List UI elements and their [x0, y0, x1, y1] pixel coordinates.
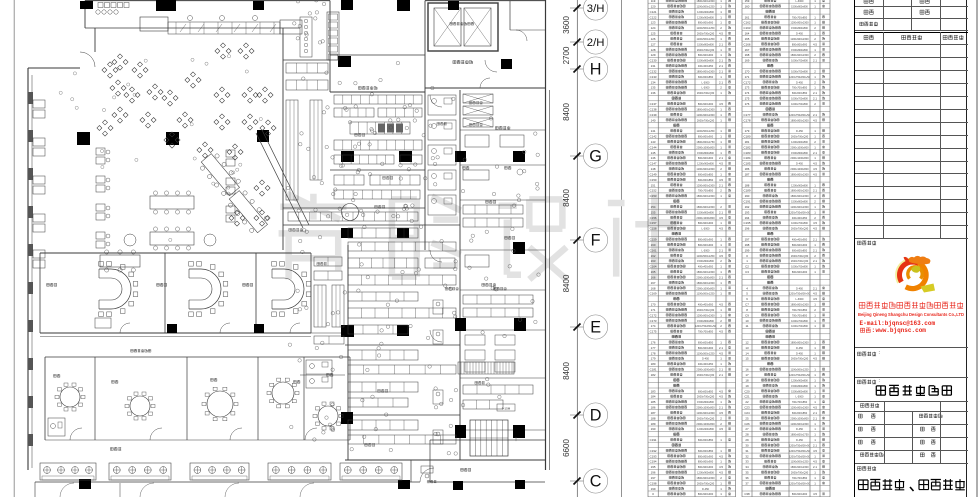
svg-text:C: C: [590, 472, 602, 490]
svg-text:195: 195: [651, 465, 656, 469]
svg-text:1: 1: [814, 324, 816, 328]
svg-text:800x900x900: 800x900x900: [698, 492, 714, 496]
svg-text:1: 1: [814, 270, 816, 274]
svg-text:162: 162: [651, 254, 656, 258]
svg-text:1100x560x1250: 1100x560x1250: [697, 292, 716, 296]
svg-text:1200x900x800: 1200x900x800: [697, 471, 714, 475]
svg-text:194: 194: [745, 216, 750, 220]
svg-text:176: 176: [651, 341, 656, 345]
svg-text:700x700x850: 700x700x850: [698, 189, 714, 193]
svg-text:8400: 8400: [562, 189, 571, 207]
svg-text:1: 1: [720, 243, 722, 247]
svg-text:1800x900x2300: 1800x900x2300: [696, 476, 715, 480]
svg-text:700x700x850: 700x700x850: [792, 308, 808, 312]
svg-text:2.1: 2.1: [719, 210, 723, 214]
svg-text:1500x800x800: 1500x800x800: [697, 151, 714, 155]
svg-text:600x600x850: 600x600x850: [698, 178, 714, 182]
svg-text:31: 31: [745, 449, 749, 453]
svg-text:1: 1: [814, 422, 816, 426]
svg-text:2.1: 2.1: [813, 416, 817, 420]
svg-text:400x400x950: 400x400x950: [792, 238, 808, 242]
svg-text:C191: C191: [744, 200, 751, 204]
svg-text:2.1: 2.1: [719, 64, 723, 68]
svg-text:4.5: 4.5: [719, 330, 723, 334]
svg-text:800x900x900: 800x900x900: [792, 270, 808, 274]
svg-text:1500x800x800: 1500x800x800: [791, 4, 808, 8]
svg-text:2.1: 2.1: [719, 368, 723, 372]
svg-text:25: 25: [745, 416, 749, 420]
svg-text:C156: C156: [650, 216, 657, 220]
svg-text:C182: C182: [744, 145, 751, 149]
svg-text:G: G: [589, 147, 602, 165]
svg-text:15: 15: [745, 357, 749, 361]
svg-text:174: 174: [745, 91, 750, 95]
svg-text:1: 1: [814, 129, 816, 133]
svg-text:600x600x850: 600x600x850: [698, 389, 714, 393]
svg-text:600x600x850: 600x600x850: [792, 91, 808, 95]
svg-text:1: 1: [720, 194, 722, 198]
svg-text:190: 190: [745, 194, 750, 198]
svg-text:C137: C137: [650, 102, 657, 106]
svg-text:1200x900x2300: 1200x900x2300: [790, 21, 809, 25]
svg-text:19: 19: [745, 384, 749, 388]
svg-text:C184: C184: [744, 156, 751, 160]
svg-text:1: 1: [814, 210, 816, 214]
svg-text:600x600x850: 600x600x850: [698, 75, 714, 79]
svg-text:196: 196: [651, 471, 656, 475]
svg-text:2600x700xQ30: 2600x700xQ30: [791, 227, 809, 231]
svg-text:1: 1: [814, 346, 816, 350]
svg-text:1500x800x800: 1500x800x800: [697, 210, 714, 214]
svg-text:1: 1: [720, 107, 722, 111]
svg-text:186: 186: [745, 167, 750, 171]
svg-text:1: 1: [720, 400, 722, 404]
svg-text:2.1: 2.1: [719, 70, 723, 74]
svg-text:D-450: D-450: [796, 346, 804, 350]
svg-text:1500x800x800: 1500x800x800: [791, 26, 808, 30]
svg-text:192: 192: [745, 205, 750, 209]
svg-text:4.5: 4.5: [813, 492, 817, 496]
svg-text:1: 1: [720, 238, 722, 242]
svg-text:1: 1: [720, 53, 722, 57]
svg-text:187: 187: [745, 173, 750, 177]
svg-text:2000x1000x800: 2000x1000x800: [696, 145, 715, 149]
svg-text:32: 32: [745, 454, 749, 458]
svg-text:4.5: 4.5: [719, 216, 723, 220]
svg-text:1500x800x800: 1500x800x800: [697, 259, 714, 263]
svg-text:2: 2: [814, 200, 816, 204]
svg-text:16: 16: [745, 368, 749, 372]
svg-text:1000x700x800: 1000x700x800: [791, 102, 808, 106]
svg-text:169: 169: [745, 59, 750, 63]
svg-text:1800x900x2300: 1800x900x2300: [790, 53, 809, 57]
svg-text:1: 1: [814, 341, 816, 345]
svg-text:131: 131: [651, 64, 656, 68]
svg-text:14: 14: [745, 351, 749, 355]
svg-text:1000x700x800: 1000x700x800: [791, 265, 808, 269]
svg-text:123: 123: [651, 21, 656, 25]
svg-text:168: 168: [651, 286, 656, 290]
svg-text:C153: C153: [650, 194, 657, 198]
svg-text:C130: C130: [650, 59, 657, 63]
svg-text:C21: C21: [744, 395, 750, 399]
svg-text:C152: C152: [650, 189, 657, 193]
svg-text:800x900x900: 800x900x900: [698, 454, 714, 458]
svg-text:C147: C147: [650, 162, 657, 166]
svg-text:4.5: 4.5: [813, 42, 817, 46]
svg-text:4.5: 4.5: [719, 395, 723, 399]
svg-text:1800x900x2300: 1800x900x2300: [790, 189, 809, 193]
svg-text:4.5: 4.5: [813, 118, 817, 122]
svg-text:1: 1: [720, 341, 722, 345]
svg-text:167: 167: [745, 48, 750, 52]
svg-text:1200x900x800: 1200x900x800: [791, 140, 808, 144]
svg-text:165: 165: [745, 37, 750, 41]
svg-text:1500x800x800: 1500x800x800: [791, 389, 808, 393]
svg-text:H: H: [590, 60, 602, 78]
svg-text:C166: C166: [744, 42, 751, 46]
svg-text:4.5: 4.5: [719, 427, 723, 431]
svg-text:183: 183: [651, 389, 656, 393]
svg-text:4.5: 4.5: [719, 32, 723, 36]
svg-text:1200x900x2300: 1200x900x2300: [696, 167, 715, 171]
svg-text:2.1: 2.1: [813, 189, 817, 193]
svg-text:700x700x850: 700x700x850: [792, 313, 808, 317]
svg-text:2000x1000x800: 2000x1000x800: [790, 416, 809, 420]
svg-text:154: 154: [651, 205, 656, 209]
svg-text:166: 166: [651, 275, 656, 279]
svg-text:4.5: 4.5: [719, 162, 723, 166]
svg-text:2000x1000x800: 2000x1000x800: [696, 216, 715, 220]
svg-text:800x900x900: 800x900x900: [792, 42, 808, 46]
svg-text:193: 193: [745, 210, 750, 214]
svg-text:1: 1: [720, 357, 722, 361]
svg-text:C7: C7: [745, 303, 749, 307]
svg-text:8: 8: [746, 308, 748, 312]
svg-text:2600x700xQ30: 2600x700xQ30: [791, 254, 809, 258]
svg-text:17: 17: [745, 373, 749, 377]
svg-text:10: 10: [745, 319, 749, 323]
svg-text:1: 1: [814, 15, 816, 19]
svg-text:1: 1: [814, 265, 816, 269]
svg-text:2.1: 2.1: [813, 91, 817, 95]
svg-text:1200x750x800+50: 1200x750x800+50: [789, 481, 811, 485]
svg-text:800x900x900: 800x900x900: [698, 238, 714, 242]
svg-text:2.1: 2.1: [719, 183, 723, 187]
svg-text:151: 151: [651, 183, 656, 187]
svg-text:1800x900x2300: 1800x900x2300: [696, 194, 715, 198]
svg-text:C133: C133: [650, 75, 657, 79]
svg-text:1: 1: [814, 243, 816, 247]
svg-text:1200x750x800+50: 1200x750x800+50: [789, 454, 811, 458]
svg-text:C173: C173: [650, 319, 657, 323]
svg-text:C23: C23: [744, 406, 750, 410]
svg-text:199: 199: [745, 248, 750, 252]
svg-text:2000x1000x800: 2000x1000x800: [696, 406, 715, 410]
svg-text:800x900x900: 800x900x900: [698, 346, 714, 350]
svg-text:1: 1: [720, 151, 722, 155]
svg-text:2: 2: [720, 422, 722, 426]
svg-text:1800x900x2300: 1800x900x2300: [790, 341, 809, 345]
svg-text:163: 163: [651, 259, 656, 263]
svg-text:C161: C161: [650, 248, 657, 252]
svg-text:1500x800x800: 1500x800x800: [697, 42, 714, 46]
svg-text:4.5: 4.5: [719, 178, 723, 182]
svg-text:1800x900x2300: 1800x900x2300: [790, 303, 809, 307]
svg-text:800x900x900: 800x900x900: [698, 21, 714, 25]
svg-text:1000x700x800: 1000x700x800: [791, 97, 808, 101]
svg-text:1: 1: [814, 433, 816, 437]
svg-text:119: 119: [651, 0, 656, 3]
svg-text:700x700x850: 700x700x850: [792, 86, 808, 90]
svg-text:145: 145: [651, 151, 656, 155]
svg-text:1200x900x2300: 1200x900x2300: [790, 205, 809, 209]
svg-text:2600x700xQ30: 2600x700xQ30: [791, 135, 809, 139]
svg-text:180: 180: [651, 362, 656, 366]
svg-text:800x900x900: 800x900x900: [698, 102, 714, 106]
svg-text:C180: C180: [744, 135, 751, 139]
svg-text:4.5: 4.5: [813, 297, 817, 301]
svg-text:1800x900x2300: 1800x900x2300: [696, 281, 715, 285]
svg-text:1: 1: [814, 384, 816, 388]
svg-text:199: 199: [651, 487, 656, 491]
svg-text:1: 1: [720, 438, 722, 442]
svg-text:2.1: 2.1: [813, 97, 817, 101]
svg-text:1: 1: [720, 135, 722, 139]
svg-text:4.5: 4.5: [813, 162, 817, 166]
svg-text:400x400x950: 400x400x950: [698, 64, 714, 68]
svg-text:4: 4: [746, 286, 748, 290]
svg-text:1: 1: [720, 281, 722, 285]
svg-text:1: 1: [814, 145, 816, 149]
svg-text:1: 1: [814, 156, 816, 160]
svg-text:1: 1: [720, 21, 722, 25]
svg-text:186: 186: [651, 406, 656, 410]
svg-text:129: 129: [651, 53, 656, 57]
svg-text:C157: C157: [650, 221, 657, 225]
svg-text:800x900x900: 800x900x900: [698, 156, 714, 160]
svg-text:34: 34: [745, 465, 749, 469]
svg-text:3600: 3600: [562, 16, 571, 34]
svg-text:1: 1: [720, 129, 722, 133]
svg-text:160: 160: [745, 4, 750, 8]
svg-text:2: 2: [720, 86, 722, 90]
svg-text:1200x750x800+50: 1200x750x800+50: [789, 373, 811, 377]
svg-text:C172: C172: [744, 80, 751, 84]
svg-text:C185: C185: [744, 162, 751, 166]
svg-text:1: 1: [814, 303, 816, 307]
svg-text:4.5: 4.5: [813, 227, 817, 231]
svg-text:2.1: 2.1: [719, 406, 723, 410]
svg-text:2.1: 2.1: [813, 411, 817, 415]
svg-text:159: 159: [745, 0, 750, 3]
svg-text:C159: C159: [650, 238, 657, 242]
svg-text:D-450: D-450: [702, 487, 710, 491]
svg-text:2.1: 2.1: [813, 248, 817, 252]
svg-text:2: 2: [814, 194, 816, 198]
svg-text:1: 1: [720, 313, 722, 317]
svg-text:1: 1: [814, 389, 816, 393]
svg-text:C169: C169: [650, 292, 657, 296]
svg-text:4.5: 4.5: [719, 303, 723, 307]
svg-text:400x400x950: 400x400x950: [698, 362, 714, 366]
svg-text:↑: ↑: [514, 436, 518, 443]
svg-text:134: 134: [651, 80, 656, 84]
svg-text:1: 1: [746, 259, 748, 263]
svg-text:800x900x900: 800x900x900: [698, 243, 714, 247]
svg-text:700x700x850: 700x700x850: [792, 15, 808, 19]
svg-text:124: 124: [651, 26, 656, 30]
svg-text:800x900x900: 800x900x900: [698, 460, 714, 464]
svg-text:2: 2: [814, 53, 816, 57]
svg-text:1: 1: [720, 75, 722, 79]
svg-text:187: 187: [651, 411, 656, 415]
svg-text:1800x600x1750: 1800x600x1750: [696, 140, 715, 144]
svg-text:C195: C195: [744, 221, 751, 225]
svg-text:400x400x950: 400x400x950: [792, 216, 808, 220]
svg-text:4.5: 4.5: [813, 292, 817, 296]
svg-text:C9: C9: [745, 313, 749, 317]
svg-text:400x400x950: 400x400x950: [698, 303, 714, 307]
svg-text:2: 2: [814, 37, 816, 41]
svg-text:800x900x900: 800x900x900: [698, 135, 714, 139]
svg-text:4.5: 4.5: [719, 227, 723, 231]
svg-text:2700: 2700: [562, 46, 571, 64]
svg-text:C175: C175: [650, 330, 657, 334]
svg-text:2: 2: [720, 324, 722, 328]
svg-text:178: 178: [651, 351, 656, 355]
svg-text:1: 1: [814, 476, 816, 480]
svg-text:2.1: 2.1: [813, 113, 817, 117]
svg-text:1: 1: [720, 460, 722, 464]
svg-text:C150: C150: [650, 178, 657, 182]
svg-text:1: 1: [720, 449, 722, 453]
svg-text:1: 1: [720, 48, 722, 52]
svg-text:700x700x850: 700x700x850: [698, 330, 714, 334]
svg-text:1200x750x800+50: 1200x750x800+50: [789, 444, 811, 448]
svg-text:D-450: D-450: [796, 129, 804, 133]
svg-text:1: 1: [720, 265, 722, 269]
svg-text:1: 1: [814, 454, 816, 458]
svg-text:2.1: 2.1: [719, 248, 723, 252]
svg-text:2: 2: [720, 259, 722, 263]
svg-text:1: 1: [814, 400, 816, 404]
svg-text:167: 167: [651, 281, 656, 285]
svg-text:36: 36: [745, 476, 749, 480]
svg-text:2000x1000x800: 2000x1000x800: [696, 286, 715, 290]
svg-text:2000x1000x800: 2000x1000x800: [696, 422, 715, 426]
svg-text:C121: C121: [650, 10, 657, 14]
svg-text:1200x750x800+50: 1200x750x800+50: [789, 292, 811, 296]
svg-text:0: 0: [652, 492, 654, 496]
svg-text:140: 140: [651, 118, 656, 122]
svg-text:125: 125: [651, 32, 656, 36]
svg-text:1: 1: [720, 4, 722, 8]
svg-text:155: 155: [651, 210, 656, 214]
svg-text:L-3000: L-3000: [702, 86, 711, 90]
svg-text:L-3000: L-3000: [702, 248, 711, 252]
svg-text:4.5: 4.5: [719, 454, 723, 458]
svg-text:1: 1: [814, 21, 816, 25]
svg-text:1100x560x1250: 1100x560x1250: [697, 37, 716, 41]
svg-text:D-450: D-450: [796, 286, 804, 290]
svg-text:184: 184: [651, 395, 656, 399]
svg-text:4.5: 4.5: [719, 254, 723, 258]
svg-text:1: 1: [720, 270, 722, 274]
svg-text:8400: 8400: [562, 362, 571, 380]
svg-text:1100x560x1250: 1100x560x1250: [697, 129, 716, 133]
svg-text:C172: C172: [650, 313, 657, 317]
svg-text:L-3000: L-3000: [702, 227, 711, 231]
svg-text:22: 22: [745, 400, 749, 404]
svg-text:2000x1000x800: 2000x1000x800: [696, 368, 715, 372]
svg-text:1800x900x2300: 1800x900x2300: [696, 70, 715, 74]
svg-text:2: 2: [814, 80, 816, 84]
svg-text:C178: C178: [744, 118, 751, 122]
svg-text:1: 1: [814, 427, 816, 431]
svg-text:197: 197: [651, 476, 656, 480]
svg-text:3/H: 3/H: [587, 3, 605, 15]
svg-text:2: 2: [814, 216, 816, 220]
svg-text:C142: C142: [650, 135, 657, 139]
svg-text:2600x700xQ30: 2600x700xQ30: [697, 416, 715, 420]
svg-text:11: 11: [745, 324, 748, 328]
svg-text:1200x900x2300: 1200x900x2300: [790, 406, 809, 410]
svg-text:2600x700xQ30: 2600x700xQ30: [697, 481, 715, 485]
svg-text:12: 12: [745, 341, 749, 345]
svg-text:1: 1: [814, 351, 816, 355]
svg-text:1: 1: [814, 368, 816, 372]
svg-text:189: 189: [651, 422, 656, 426]
svg-text:126: 126: [651, 37, 656, 41]
svg-text:600x600x850: 600x600x850: [698, 449, 714, 453]
svg-text:1500x800x800: 1500x800x800: [791, 48, 808, 52]
svg-text:1: 1: [720, 173, 722, 177]
svg-text:4.5: 4.5: [813, 460, 817, 464]
svg-text:2000x1000x800: 2000x1000x800: [696, 275, 715, 279]
svg-text:1: 1: [814, 48, 816, 52]
svg-text:2: 2: [814, 70, 816, 74]
svg-text:2.1: 2.1: [813, 151, 817, 155]
svg-text:1200x900x800: 1200x900x800: [697, 10, 714, 14]
svg-text:2: 2: [720, 26, 722, 30]
svg-text:170: 170: [651, 303, 656, 307]
svg-text:1200x900x800: 1200x900x800: [791, 378, 808, 382]
svg-text:143: 143: [651, 140, 656, 144]
svg-text:C2: C2: [745, 265, 749, 269]
svg-text:2.1: 2.1: [719, 346, 723, 350]
svg-text:4.5: 4.5: [719, 102, 723, 106]
svg-text:1200x900x800: 1200x900x800: [697, 15, 714, 19]
svg-text:D-450: D-450: [796, 32, 804, 36]
svg-text:1200x900x800: 1200x900x800: [791, 183, 808, 187]
svg-text:4.5: 4.5: [813, 406, 817, 410]
svg-text:1: 1: [720, 0, 722, 3]
svg-text:D-450: D-450: [796, 80, 804, 84]
svg-text:800x900x900: 800x900x900: [792, 243, 808, 247]
svg-text:1: 1: [814, 135, 816, 139]
svg-text:2: 2: [720, 189, 722, 193]
svg-text:2.1: 2.1: [719, 80, 723, 84]
svg-text:179: 179: [745, 129, 750, 133]
svg-text:176: 176: [745, 102, 750, 106]
svg-text:C20: C20: [744, 389, 750, 393]
svg-text:800x900x900: 800x900x900: [698, 221, 714, 225]
svg-text:4.5: 4.5: [719, 389, 723, 393]
svg-text:2.1: 2.1: [719, 156, 723, 160]
svg-text:1800x900x2300: 1800x900x2300: [696, 205, 715, 209]
svg-text:8400: 8400: [562, 274, 571, 292]
